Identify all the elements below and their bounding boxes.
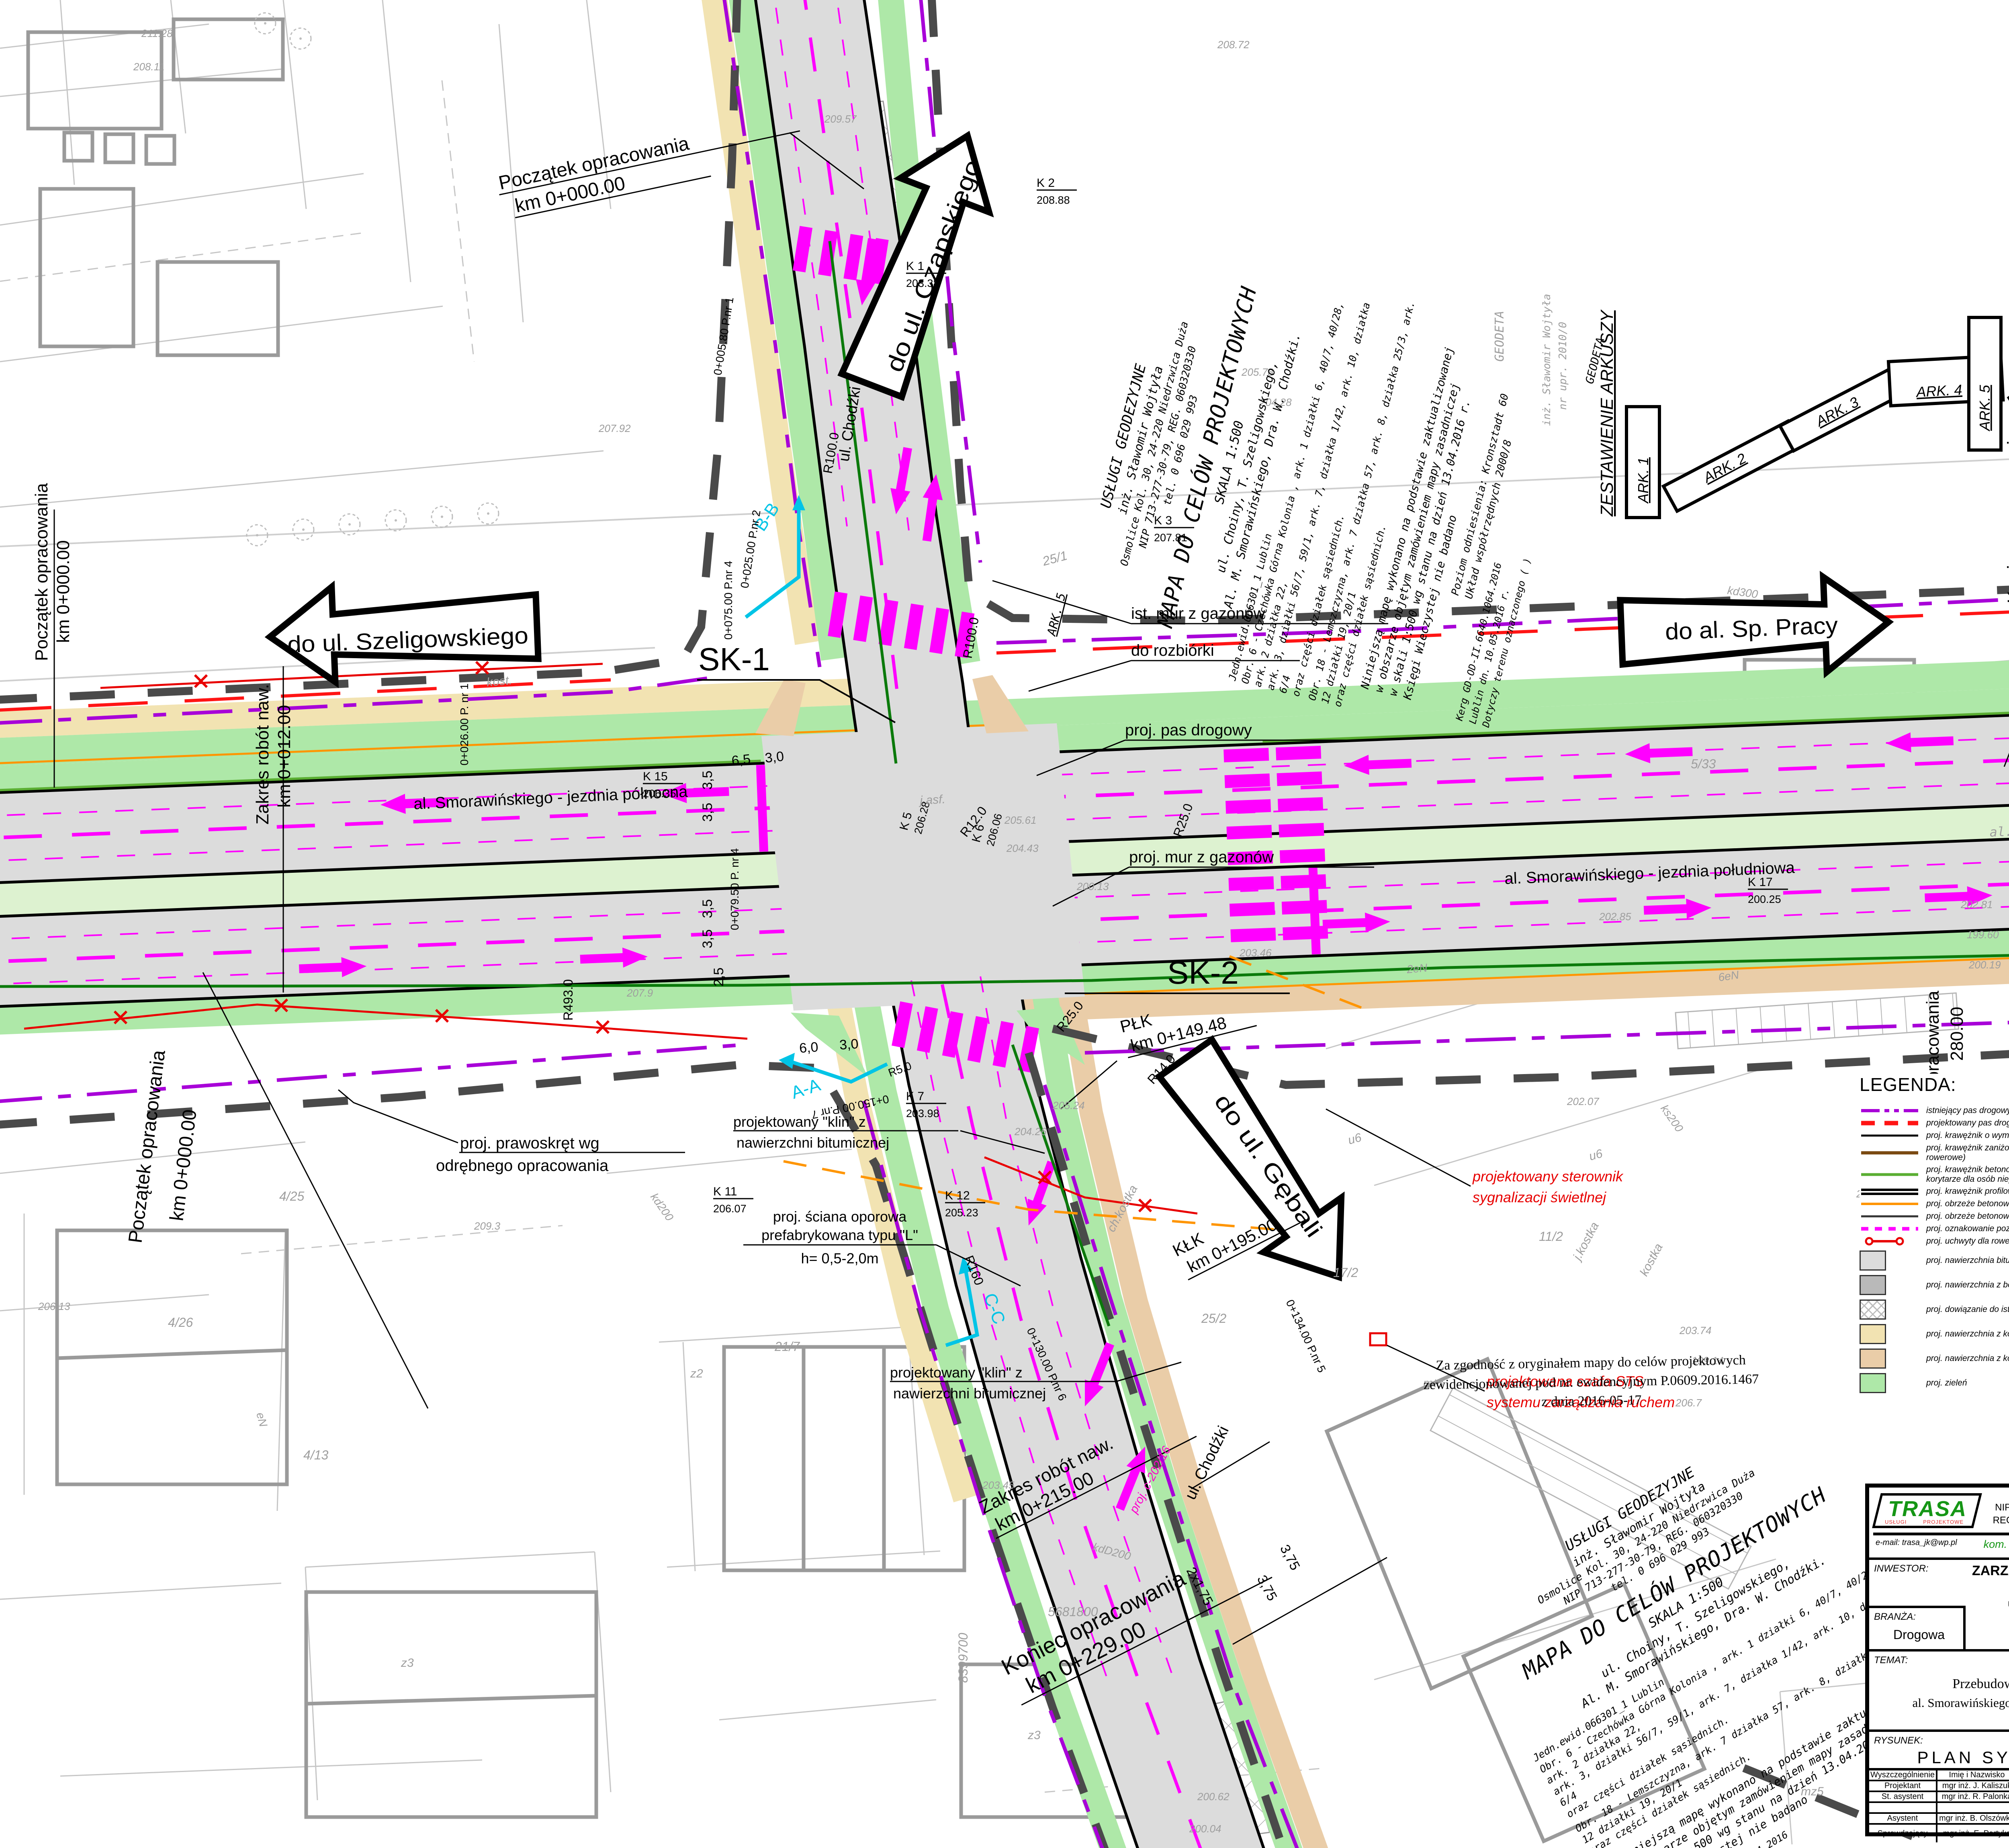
svg-text:200.62: 200.62 (1197, 1791, 1230, 1803)
section-sk1: SK-1 (698, 641, 770, 677)
svg-text:K 15: K 15 (643, 770, 668, 783)
svg-text:kost.: kost. (486, 674, 513, 689)
sheet-index-sig1: inż. Sławomir Wojtyła (1541, 294, 1553, 426)
legend-item: proj. obrzeże betonowe 8x30cm (1860, 1212, 2009, 1221)
svg-text:208.72: 208.72 (1217, 39, 1250, 51)
tie-in-swatch (1860, 1300, 1886, 1320)
legend-item: proj. obrzeże betonowe 6x20cm (1860, 1199, 2009, 1209)
investor-section: INWESTOR: ZARZĄD DRÓG I MOSTÓW W LUBLINI… (1869, 1560, 2009, 1652)
edge-8x30-line-icon (1860, 1212, 1920, 1221)
ist-mur-l1: ist. mur z gazonów (1131, 605, 1265, 622)
svg-text:ARK. 5: ARK. 5 (1976, 385, 1993, 432)
concrete-swatch (1860, 1275, 1886, 1295)
svg-text:207.9: 207.9 (626, 987, 653, 999)
svg-text:R493.0: R493.0 (561, 979, 575, 1021)
svg-text:203.74: 203.74 (1679, 1324, 1712, 1336)
svg-text:K 7: K 7 (906, 1090, 924, 1103)
svg-text:K 1: K 1 (906, 260, 924, 273)
svg-text:207.81: 207.81 (1154, 532, 1187, 544)
intersection-surface (761, 723, 1085, 1011)
svg-text:6,0: 6,0 (799, 1040, 819, 1056)
svg-text:206.07: 206.07 (713, 1203, 747, 1215)
svg-text:K 2: K 2 (1037, 176, 1055, 190)
legend-item: proj. dowiązanie do ist. nawierzchni (1860, 1300, 2009, 1320)
svg-text:205.24: 205.24 (1052, 1099, 1085, 1111)
proj-pas-label: proj. pas drogowy (1125, 721, 1252, 739)
section-sk2: SK-2 (1167, 955, 1239, 991)
svg-text:25/2: 25/2 (1201, 1311, 1226, 1326)
svg-text:4/26: 4/26 (168, 1315, 193, 1330)
legend-item: istniejący pas drogowy (1860, 1106, 2009, 1115)
svg-text:200.19: 200.19 (1968, 959, 2001, 971)
svg-text:mz5: mz5 (1801, 1785, 1824, 1798)
ist-mur-l2: do rozbiórki (1131, 642, 1214, 659)
company-ids: NIP 821-123-41-99 REGON 432258971 (1990, 1501, 2009, 1527)
design-row-line-icon (1860, 1118, 1920, 1128)
poczatek-left-l2: km 0+000.00 (53, 540, 73, 643)
sheet-index-title: ZESTAWIENIE ARKUSZY (1597, 309, 1617, 517)
table-row: --- (1869, 1803, 2009, 1814)
svg-text:z3: z3 (1027, 1729, 1041, 1742)
road-marking-line-icon (1860, 1224, 1920, 1234)
svg-text:3,5: 3,5 (700, 803, 715, 822)
table-row: St. asystentmgr inż. R. Palonka --- (1869, 1792, 2009, 1803)
table-row: Sprawdzającymgr inż. E. Partyka WZDP 19/… (1869, 1825, 2009, 1842)
svg-text:5681800: 5681800 (1048, 1604, 1098, 1619)
title-block-header: TRASA USŁUGIPROJEKTOWE NIP 821-123-41-99… (1869, 1488, 2009, 1560)
curb-line-icon (1860, 1131, 1920, 1140)
paver6-swatch (1860, 1324, 1886, 1344)
plan-canvas: B-B A-A C-C do ul. Czapskiego do ul. Sze… (0, 0, 2009, 1848)
legend-item: proj. oznakowanie poziome (1860, 1224, 2009, 1234)
svg-text:2eN: 2eN (1406, 962, 1428, 976)
legend-item: proj. uchwyty dla rowerzystów (1860, 1236, 2009, 1246)
legend-title: LEGENDA: (1860, 1074, 2009, 1095)
svg-text:ARK. 1: ARK. 1 (1635, 457, 1651, 504)
svg-text:ARK. 4: ARK. 4 (1915, 381, 1962, 400)
svg-text:17/2: 17/2 (1333, 1265, 1358, 1280)
zakres-left-l2: km 0+012.00 (274, 705, 294, 808)
legend-item: proj. krawężnik zaniżony(h=0cm)o wym. 20… (1860, 1143, 2009, 1162)
svg-text:K 12: K 12 (945, 1189, 970, 1202)
svg-text:199.60: 199.60 (1967, 929, 1999, 941)
profiled-curb-line-icon (1860, 1187, 1920, 1196)
svg-text:3,5: 3,5 (700, 899, 715, 918)
company-email: e-mail: trasa_jk@wp.pl (1876, 1538, 1957, 1551)
drawing-name-section: RYSUNEK: PLAN SYTUACYJNY (1869, 1732, 2009, 1770)
svg-text:5/33: 5/33 (1691, 757, 1716, 771)
klin2-l2: nawierzchni bitumicznej (893, 1385, 1046, 1402)
svg-text:204.28: 204.28 (1259, 396, 1292, 408)
svg-text:205.23: 205.23 (945, 1207, 978, 1219)
svg-text:8399700: 8399700 (956, 1633, 970, 1683)
discipline-value: Drogowa (1893, 1627, 1945, 1642)
svg-text:z2: z2 (690, 1367, 703, 1380)
svg-text:208.11: 208.11 (133, 61, 165, 73)
svg-text:j.asf.: j.asf. (918, 793, 946, 807)
table-row: Asystentmgr inż. B. Olszówka --- (1869, 1814, 2009, 1825)
legend-item: proj. zieleń (1860, 1373, 2009, 1393)
svg-text:3,5: 3,5 (700, 771, 715, 790)
legend-item: projektowany pas drogowy (1860, 1118, 2009, 1128)
legend-item: proj. nawierzchnia bitumiczna (1860, 1250, 2009, 1271)
discipline-box: BRANŻA: Drogowa (1869, 1606, 1966, 1649)
klin2-l1: projektowany "klin" z (890, 1364, 1023, 1381)
koniec-right2-l2: 280.00 (1947, 1007, 1967, 1061)
svg-text:205.61: 205.61 (1004, 814, 1037, 826)
svg-text:204.26: 204.26 (1014, 1126, 1047, 1138)
klin1-l2: nawierzchni bitumicznej (736, 1134, 889, 1151)
geodeta-label: GEODETA (1493, 311, 1507, 362)
system-curb-line-icon (1860, 1170, 1920, 1179)
legend-item: proj. krawężnik betonowy systemowy wg ry… (1860, 1165, 2009, 1184)
legend-item: proj. krawężnik o wym. 20cmx30cm (1860, 1131, 2009, 1140)
poczatek-left-l1: Początek opracowania (32, 483, 51, 661)
svg-text:4/13: 4/13 (303, 1448, 328, 1462)
svg-text:203.98: 203.98 (906, 1107, 939, 1119)
sheet-index-sig2: nr upr. 2010/0 (1557, 322, 1569, 410)
prawoskret-l2: odrębnego opracowania (436, 1157, 609, 1175)
subject-section: TEMAT: Przebudowa skrzyżowania al. Smora… (1869, 1652, 2009, 1732)
company-logo: TRASA USŁUGIPROJEKTOWE (1872, 1493, 1982, 1528)
legend-item: proj. nawierzchnia z kostki bet. gr. 8cm (1860, 1349, 2009, 1369)
site-plan-drawing: B-B A-A C-C do ul. Czapskiego do ul. Sze… (0, 0, 2009, 1848)
bituminous-swatch (1860, 1250, 1886, 1271)
koniec-right-l1: Koniec opracowania (2004, 430, 2009, 604)
legend-item: proj. nawierzchnia z kostki bet. gr. 6cm (1860, 1324, 2009, 1344)
table-header-row: Wyszczególnienie Imię i Nazwisko Podpis … (1869, 1770, 2009, 1781)
svg-text:209.57: 209.57 (824, 113, 857, 125)
svg-text:207.92: 207.92 (598, 422, 631, 434)
svg-text:203.38: 203.38 (906, 277, 939, 289)
subject-line1: Przebudowa skrzyżowania (1881, 1676, 2009, 1692)
sciana-l3: h= 0,5-2,0m (801, 1250, 878, 1267)
klin1-l1: projektowany "klin" z (733, 1113, 866, 1130)
prawoskret-l1: proj. prawoskręt wg (460, 1134, 599, 1152)
svg-text:211.28: 211.28 (141, 27, 173, 39)
lowered-curb-line-icon (1860, 1148, 1920, 1158)
svg-text:z3: z3 (401, 1656, 414, 1670)
svg-text:0+075.00 P.nr 4: 0+075.00 P.nr 4 (722, 561, 734, 640)
investor-name: ZARZĄD DRÓG I MOSTÓW (1950, 1562, 2009, 1580)
svg-text:3,5: 3,5 (700, 929, 715, 948)
existing-row-line-icon (1860, 1106, 1920, 1115)
svg-text:202.85: 202.85 (1599, 911, 1631, 923)
svg-text:203.46: 203.46 (1239, 947, 1272, 959)
svg-text:3,0: 3,0 (764, 749, 785, 766)
company-mobile: kom. 0503 079 826 (1984, 1538, 2009, 1551)
title-block: TRASA USŁUGIPROJEKTOWE NIP 821-123-41-99… (1865, 1484, 2009, 1836)
bike-rail-icon (1860, 1236, 1920, 1246)
svg-text:0+079.50 P. nr 4: 0+079.50 P. nr 4 (728, 848, 741, 930)
svg-text:0+026.00 P. nr 1: 0+026.00 P. nr 1 (458, 684, 471, 765)
svg-text:206.13: 206.13 (38, 1300, 70, 1312)
svg-text:3,0: 3,0 (839, 1036, 859, 1053)
table-row: Projektantmgr inż. J. Kaliszuk LUB/0026/… (1869, 1781, 2009, 1792)
svg-text:204.43: 204.43 (1006, 842, 1039, 854)
drawing-name: PLAN SYTUACYJNY (1869, 1748, 2009, 1767)
svg-text:K 17: K 17 (1748, 876, 1773, 889)
sciana-l1: proj. ściana oporowa (773, 1208, 907, 1225)
svg-text:202.07: 202.07 (1567, 1095, 1600, 1107)
sciana-l2: prefabrykowana typu "L" (761, 1227, 918, 1243)
svg-text:4/25: 4/25 (279, 1189, 304, 1203)
legend: LEGENDA: istniejący pas drogowy projekto… (1860, 1074, 2009, 1398)
svg-text:206.35: 206.35 (643, 788, 676, 800)
svg-text:200.13: 200.13 (1076, 880, 1109, 892)
sterownik-l2: sygnalizacji świetlnej (1473, 1189, 1606, 1205)
legend-item: proj. krawężnik profilowany o wym. 31,4c… (1860, 1187, 2009, 1196)
svg-text:2,5: 2,5 (711, 968, 726, 986)
svg-text:209.3: 209.3 (474, 1220, 501, 1232)
svg-text:203.45: 203.45 (982, 1479, 1015, 1491)
svg-text:K 3: K 3 (1154, 514, 1172, 527)
certification-note: Za zgodność z oryginałem mapy do celów p… (1309, 1349, 1873, 1416)
svg-text:208.88: 208.88 (1037, 194, 1070, 206)
company-contact: e-mail: trasa_jk@wp.pl kom. 0503 079 826… (1869, 1538, 2009, 1551)
signature-table: Wyszczególnienie Imię i Nazwisko Podpis … (1869, 1770, 2009, 1834)
svg-text:200.04: 200.04 (1189, 1823, 1221, 1835)
sterownik-l1: projektowany sterownik (1472, 1168, 1624, 1185)
edge-6x20-line-icon (1860, 1199, 1920, 1209)
svg-text:11/2: 11/2 (1539, 1229, 1563, 1244)
svg-text:205.78: 205.78 (1241, 366, 1274, 378)
subject-line2: al. Smorawińskiego z ul. Chodźki w Lubli… (1881, 1696, 2009, 1710)
svg-text:K 11: K 11 (713, 1185, 737, 1198)
legend-item: proj. nawierzchnia z betonu cementowego (1860, 1275, 2009, 1295)
svg-text:202.81: 202.81 (1960, 898, 1993, 911)
proj-mur-label: proj. mur z gazonów (1129, 848, 1274, 866)
svg-text:200.25: 200.25 (1748, 893, 1781, 905)
zakres-left-l1: Zakres robót naw. (253, 684, 272, 825)
svg-text:6,5: 6,5 (731, 751, 751, 769)
svg-text:21/7: 21/7 (774, 1339, 800, 1354)
